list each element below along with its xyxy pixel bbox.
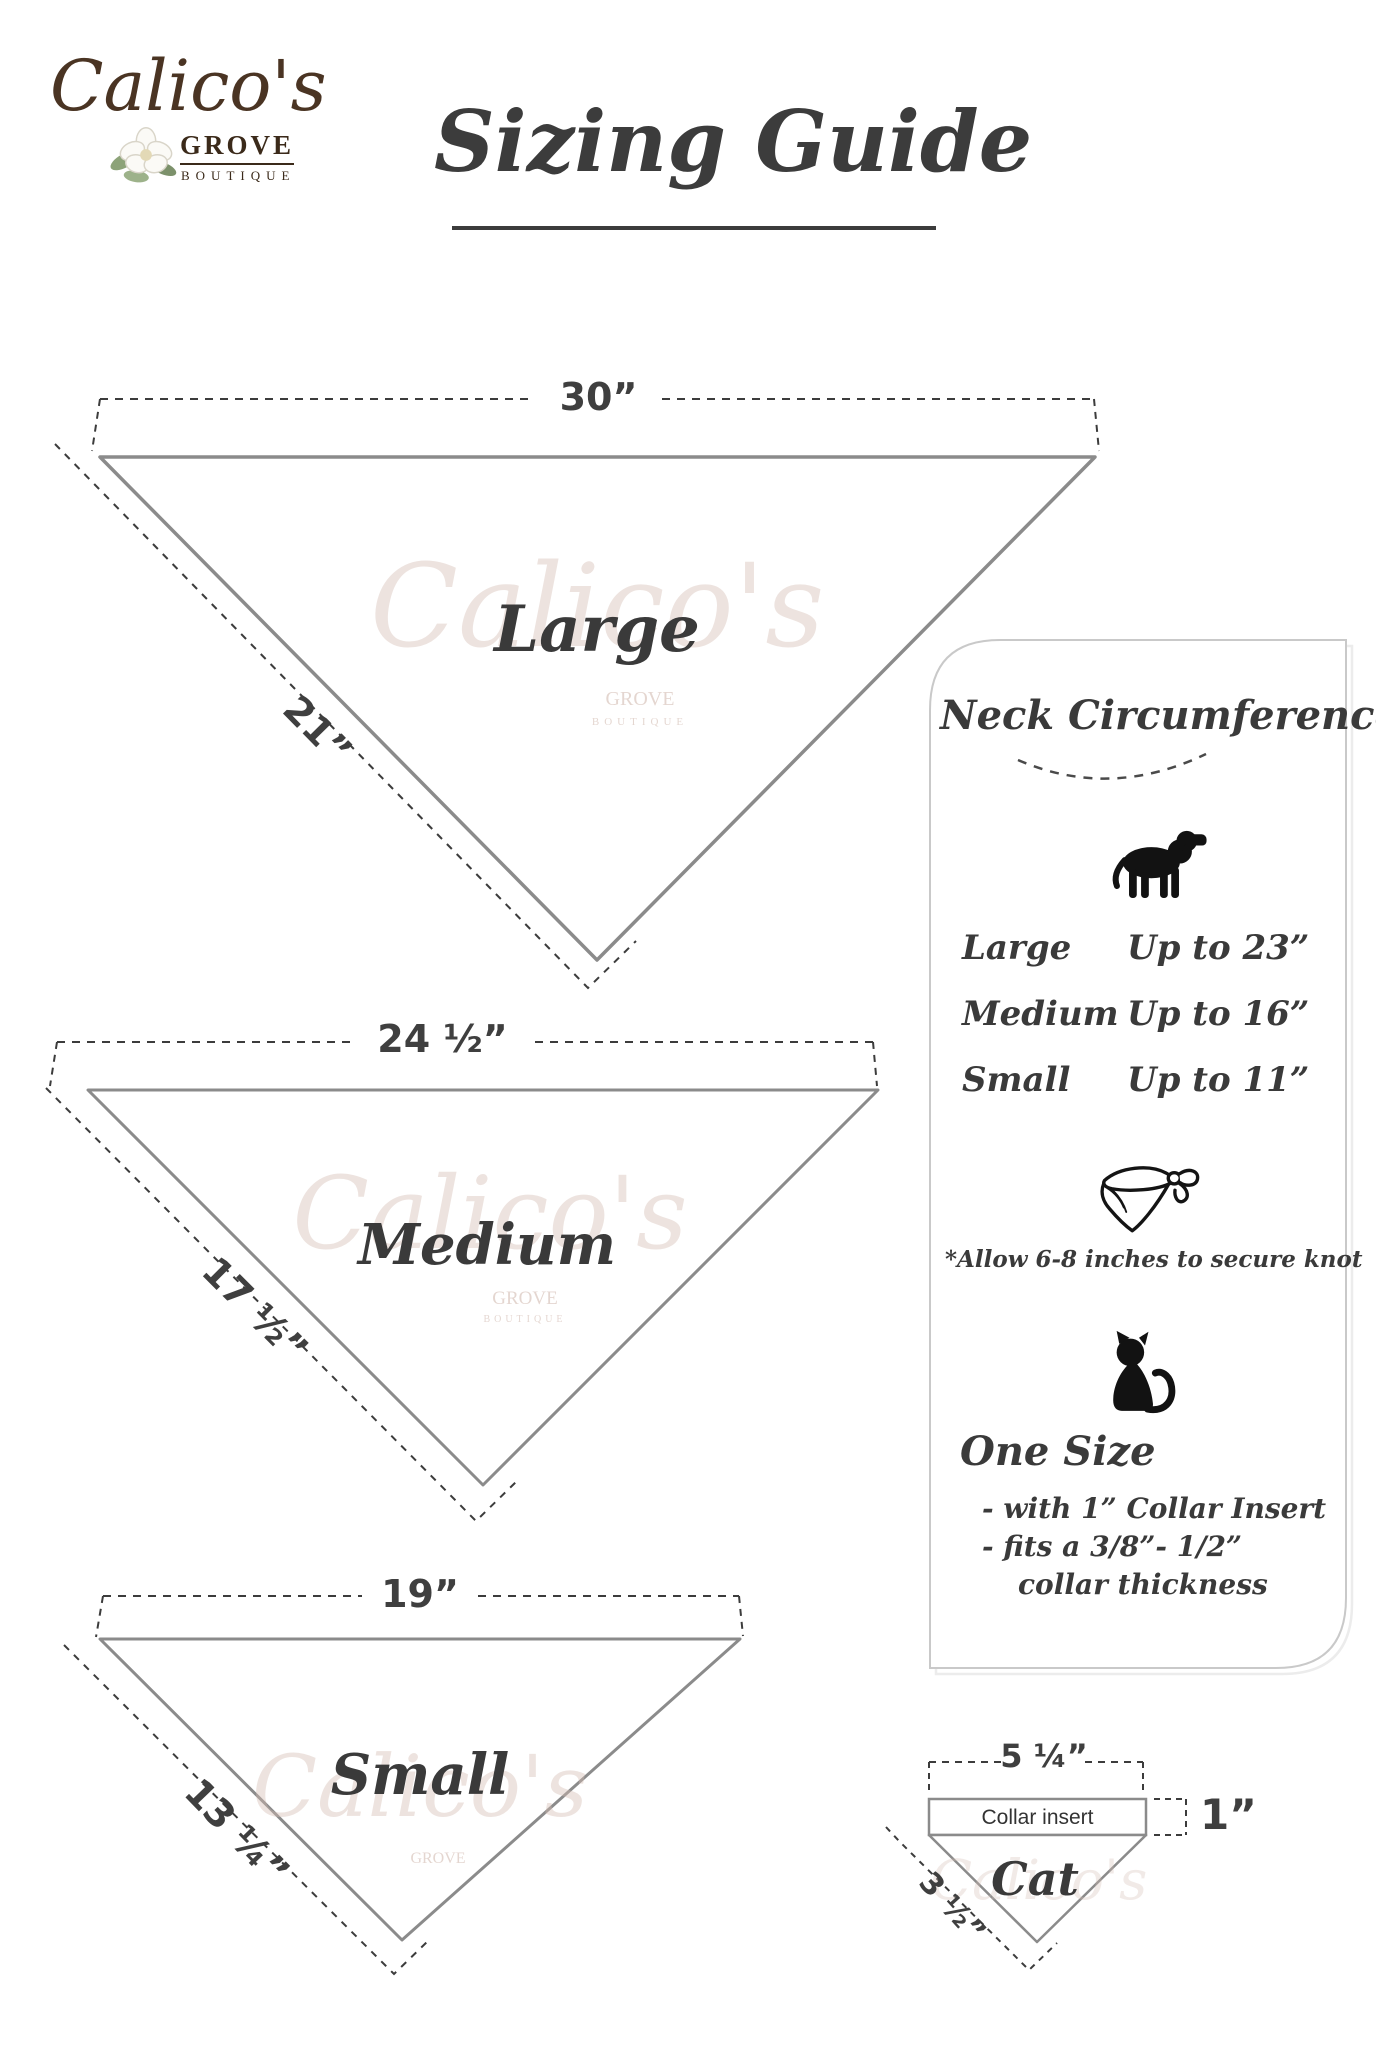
dog-icon <box>1098 820 1210 914</box>
small-triangle-label: Small <box>253 1742 587 1808</box>
bandana-icon <box>1085 1152 1205 1248</box>
cat-icon <box>1095 1330 1183 1416</box>
insert-height-label: 1” <box>1200 1790 1257 1839</box>
logo: Calico's GROVE BOUTIQUE <box>45 40 375 200</box>
size-table: Large Up to 23” Medium Up to 16” Small U… <box>962 928 1322 1126</box>
one-size-line2: - fits a 3/8”- 1/2” <box>982 1530 1242 1563</box>
size-name: Medium <box>962 994 1119 1034</box>
cat-triangle-label: Cat <box>975 1852 1095 1906</box>
size-name: Large <box>962 928 1071 968</box>
panel-heading: Neck Circumference <box>940 692 1335 739</box>
cat-width-label: 5 ¼” <box>990 1737 1098 1775</box>
size-row-small: Small Up to 11” <box>962 1060 1322 1126</box>
size-row-medium: Medium Up to 16” <box>962 994 1322 1060</box>
watermark-large-grove: GROVE <box>560 688 720 711</box>
magnolia-flower-icon <box>107 120 185 188</box>
logo-grove: GROVE <box>180 130 294 165</box>
one-size-heading: One Size <box>960 1428 1156 1475</box>
medium-triangle-label: Medium <box>320 1212 654 1278</box>
sizing-guide-page: Calico's GROVE BOUTIQUE Calico's GROVE B… <box>0 0 1376 2060</box>
watermark-medium-boutique: BOUTIQUE <box>450 1314 600 1325</box>
logo-boutique: BOUTIQUE <box>181 168 295 184</box>
size-row-large: Large Up to 23” <box>962 928 1322 994</box>
size-value: Up to 23” <box>1127 928 1309 968</box>
logo-name: Calico's <box>50 45 327 127</box>
large-triangle-label: Large <box>430 592 764 667</box>
medium-width-label: 24 ½” <box>350 1017 535 1061</box>
collar-insert-label: Collar insert <box>929 1806 1146 1830</box>
watermark-small-grove: GROVE <box>368 1850 508 1868</box>
size-value: Up to 11” <box>1127 1060 1309 1100</box>
title-underline <box>452 226 936 230</box>
watermark-large-boutique: BOUTIQUE <box>560 716 720 728</box>
page-title: Sizing Guide <box>434 92 954 191</box>
insert-height-bracket <box>1154 1799 1186 1835</box>
small-width-label: 19” <box>357 1572 483 1616</box>
large-width-label: 30” <box>535 375 662 419</box>
size-value: Up to 16” <box>1127 994 1309 1034</box>
knot-note: *Allow 6-8 inches to secure knot <box>945 1246 1330 1273</box>
one-size-line3: collar thickness <box>1018 1568 1268 1601</box>
watermark-medium-grove: GROVE <box>450 1288 600 1310</box>
one-size-line1: - with 1” Collar Insert <box>982 1492 1326 1525</box>
size-name: Small <box>962 1060 1070 1100</box>
